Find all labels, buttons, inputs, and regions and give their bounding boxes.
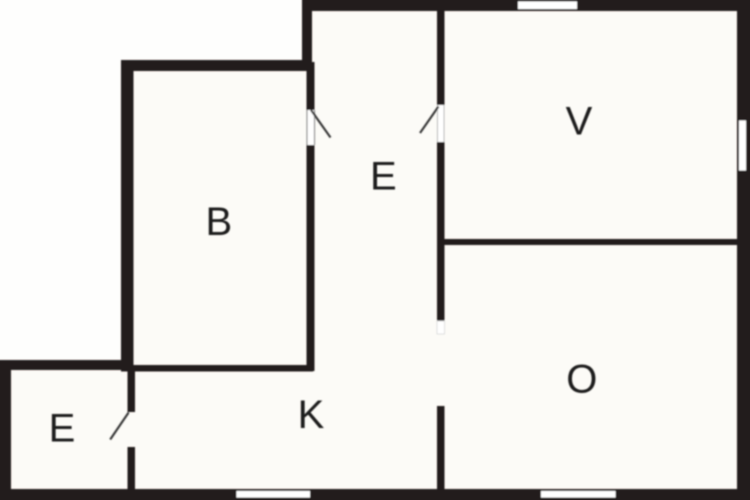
svg-text:O: O (566, 358, 597, 402)
svg-text:E: E (49, 407, 76, 451)
svg-text:V: V (566, 100, 593, 144)
svg-text:K: K (298, 393, 325, 437)
svg-text:B: B (205, 200, 232, 244)
svg-text:E: E (370, 155, 397, 199)
